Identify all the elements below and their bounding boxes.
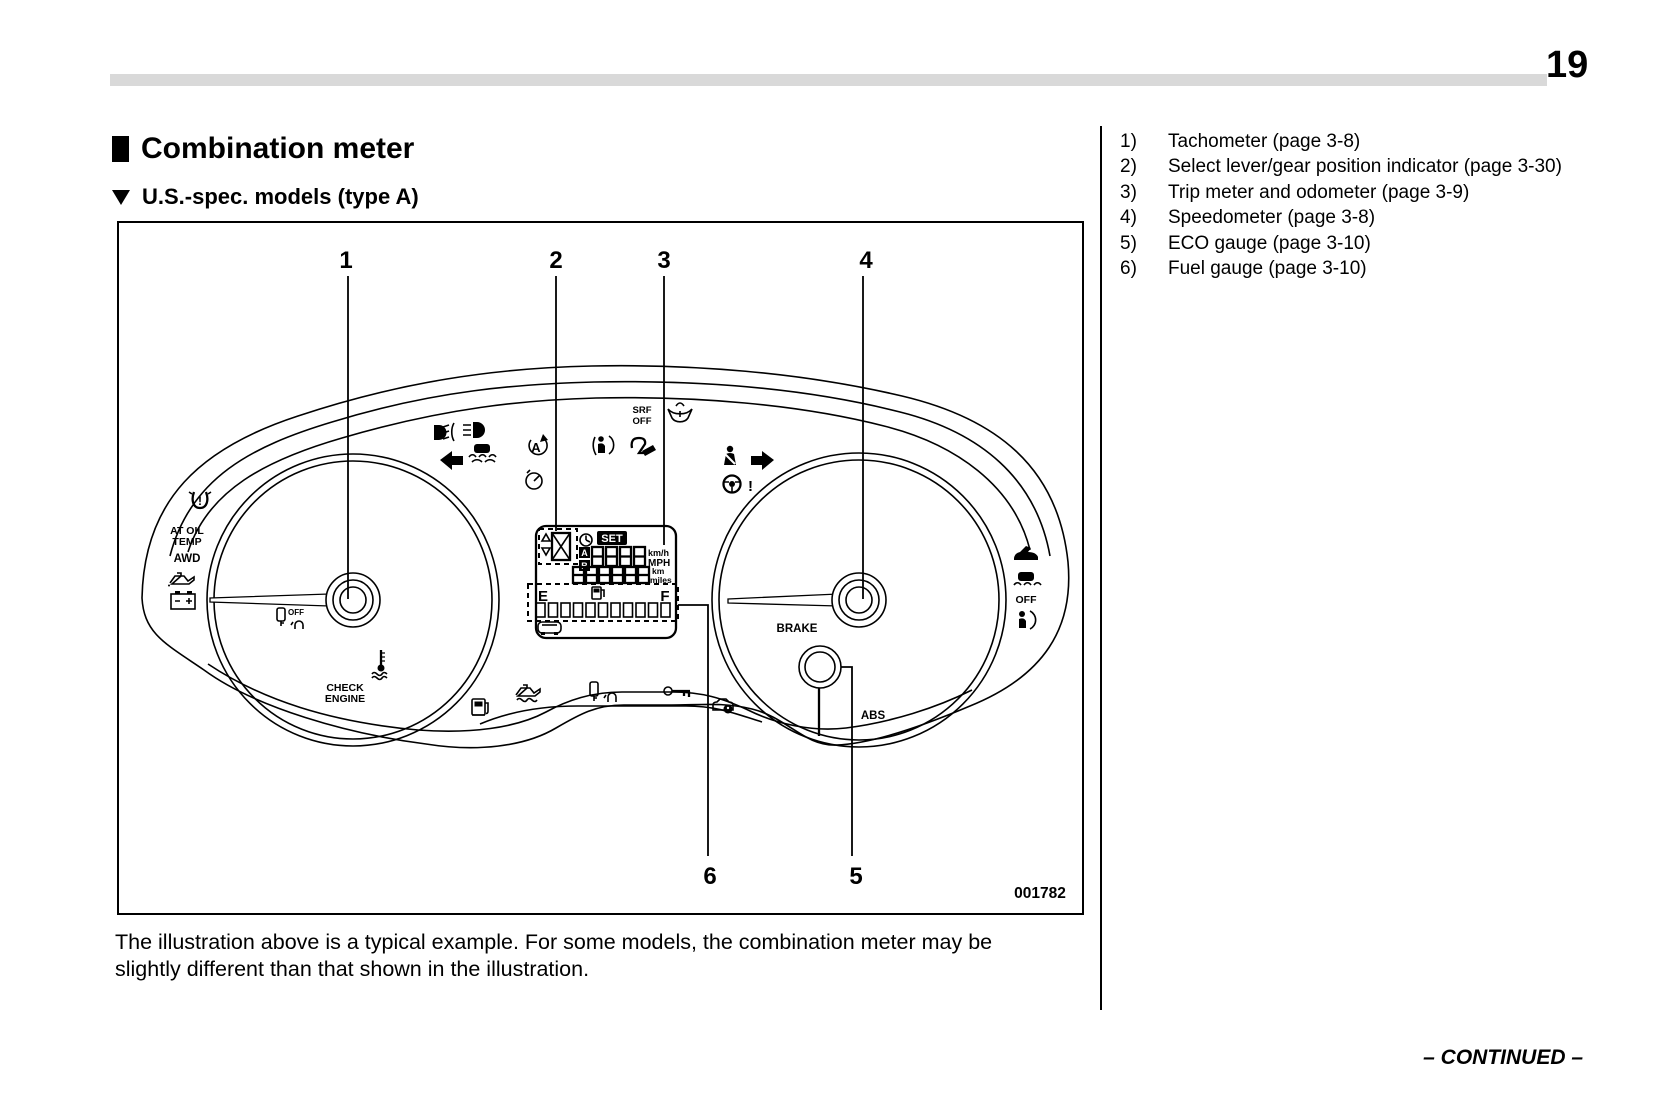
callout-2: 2 xyxy=(549,247,562,274)
figure-code: 001782 xyxy=(1014,885,1066,902)
figure-caption: The illustration above is a typical exam… xyxy=(115,929,1027,983)
auto-stop-start-letter: A xyxy=(531,440,541,455)
set-badge-label: SET xyxy=(601,533,623,545)
callout-4: 4 xyxy=(859,247,873,274)
callout-1: 1 xyxy=(339,247,352,274)
key-off-label: OFF xyxy=(288,608,304,617)
odo-unit-miles: miles xyxy=(650,575,672,585)
tpms-exclamation: ! xyxy=(198,494,202,508)
odometer-digits xyxy=(573,567,649,583)
continued-marker: – CONTINUED – xyxy=(1423,1046,1583,1070)
awd-label: AWD xyxy=(174,553,201,565)
manual-page: 19 Combination meter U.S.-spec. models (… xyxy=(0,0,1671,1114)
brake-label: BRAKE xyxy=(777,623,818,635)
vdc-off-label: OFF xyxy=(1016,594,1038,606)
high-beam-icon xyxy=(463,422,485,438)
srf-off-label: OFF xyxy=(633,416,652,427)
at-oil-temp-label-2: TEMP xyxy=(172,536,201,548)
abs-label: ABS xyxy=(861,710,886,722)
callout-3: 3 xyxy=(657,247,670,274)
steering-warning-exclamation: ! xyxy=(748,478,753,495)
check-engine-label-2: ENGINE xyxy=(325,693,365,705)
tachometer-hub-center xyxy=(340,587,366,613)
speedometer-hub-center xyxy=(846,587,872,613)
trip-a-label: A xyxy=(581,548,588,558)
srf-label: SRF xyxy=(633,405,652,416)
speed-unit-kmh: km/h xyxy=(648,548,669,558)
callout-5: 5 xyxy=(849,863,862,890)
callout-6: 6 xyxy=(703,863,716,890)
